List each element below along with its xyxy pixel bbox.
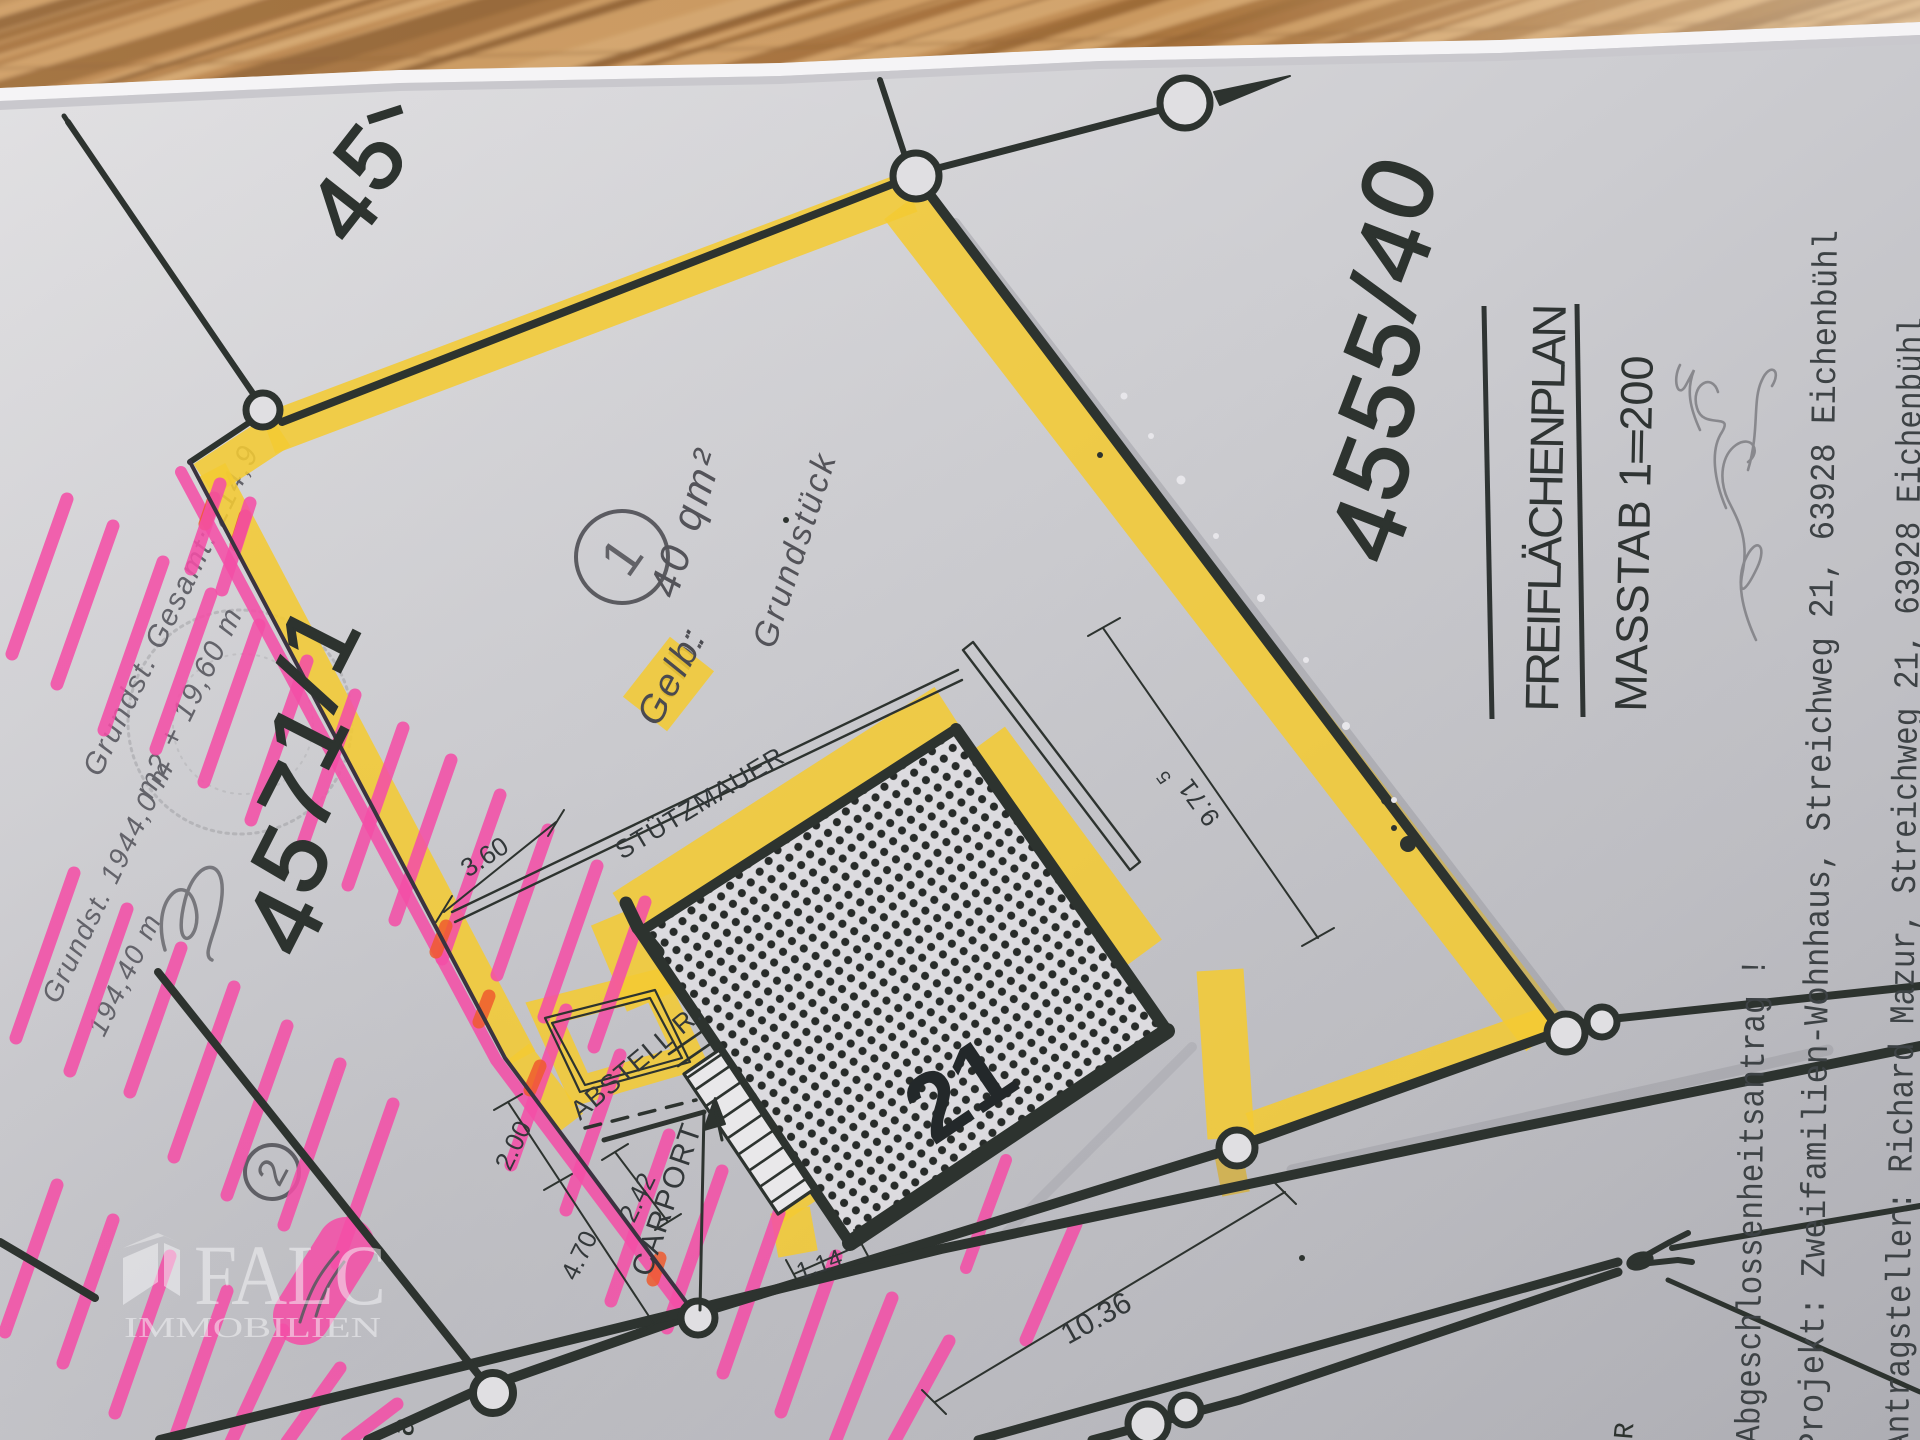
svg-text:FREIFLÄCHENPLAN: FREIFLÄCHENPLAN — [1515, 303, 1576, 712]
svg-text:IMMOBILIEN: IMMOBILIEN — [124, 1312, 381, 1344]
svg-text:FALC: FALC — [194, 1227, 386, 1323]
svg-text:MASSTAB 1═200: MASSTAB 1═200 — [1605, 355, 1663, 712]
svg-text:Abgeschlossenheitsantrag !: Abgeschlossenheitsantrag ! — [1730, 958, 1776, 1440]
svg-text:R: R — [1610, 1421, 1642, 1440]
